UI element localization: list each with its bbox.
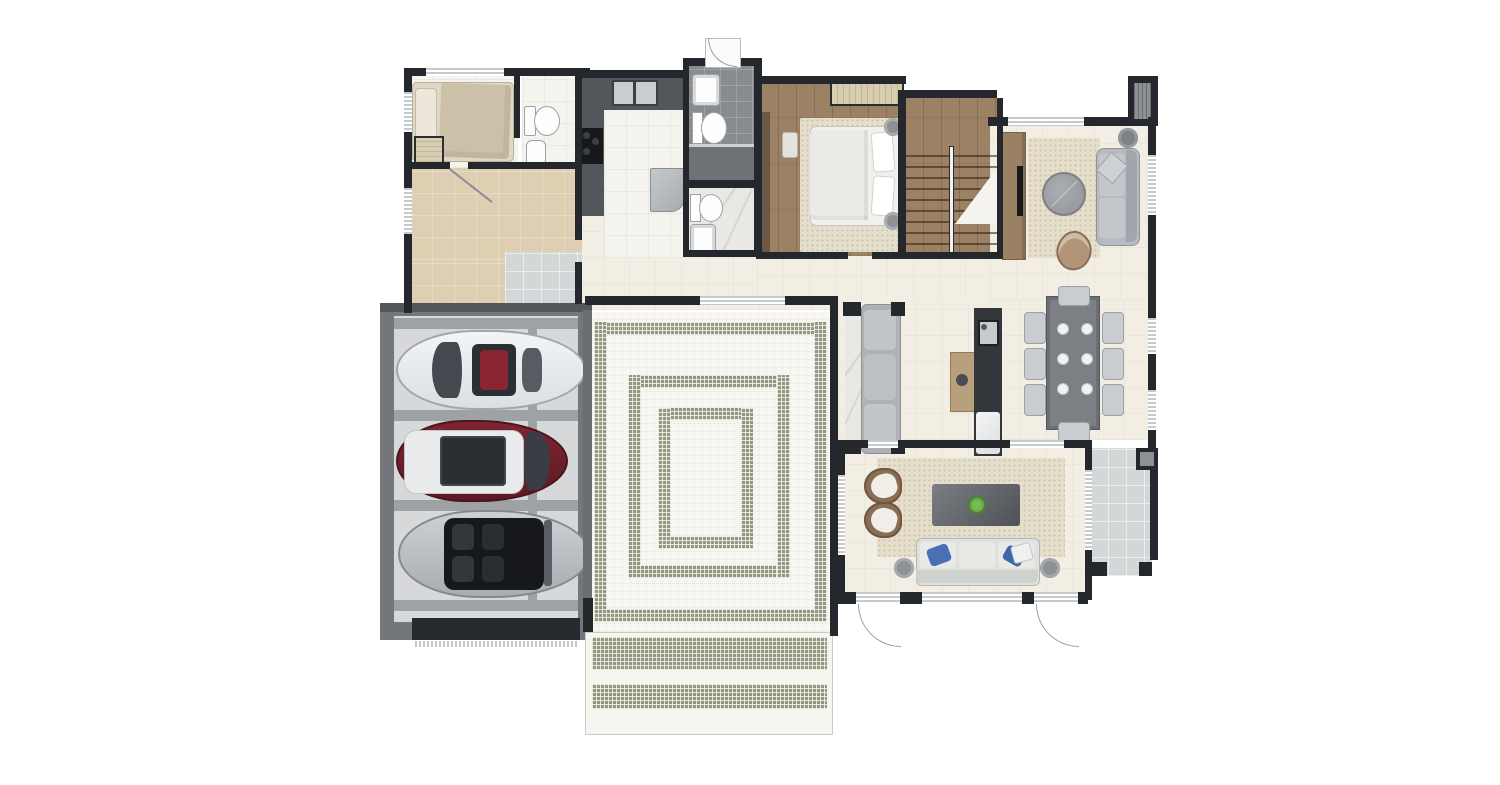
patio-tile-ring-inner bbox=[658, 408, 670, 549]
wall bbox=[830, 296, 838, 636]
window bbox=[404, 92, 412, 132]
island-faucet bbox=[981, 324, 987, 330]
bed-pillow bbox=[871, 175, 896, 216]
doorway bbox=[868, 440, 898, 448]
wall-gray bbox=[583, 310, 592, 632]
garage-door bbox=[415, 641, 577, 647]
wall bbox=[408, 162, 450, 169]
sofa-back bbox=[916, 570, 1038, 583]
bench-cushion bbox=[864, 404, 896, 444]
terrace-step bbox=[1139, 562, 1152, 576]
window bbox=[922, 592, 1022, 604]
dining-chair bbox=[1024, 312, 1046, 344]
window bbox=[1148, 390, 1156, 430]
patio-tile-ring-middle bbox=[628, 375, 790, 388]
sofa-cushion bbox=[959, 542, 995, 568]
patio-tile-ring-middle bbox=[777, 375, 790, 578]
toilet-bowl bbox=[534, 106, 560, 136]
burner bbox=[583, 132, 590, 139]
french-door bbox=[700, 296, 785, 305]
window bbox=[1148, 318, 1156, 354]
car-windshield bbox=[524, 432, 550, 490]
patio-door bbox=[856, 592, 900, 604]
master-duvet bbox=[810, 130, 868, 220]
hallway-floor bbox=[410, 168, 582, 260]
patio-tile-ring-inner bbox=[658, 408, 753, 420]
wall bbox=[683, 58, 689, 254]
bench-cushion bbox=[864, 354, 896, 400]
wall bbox=[898, 90, 906, 258]
patio-tile-ring-middle bbox=[628, 375, 641, 578]
sink bbox=[692, 74, 720, 106]
floor-plan bbox=[0, 0, 1500, 785]
patio-tile-ring-inner bbox=[741, 408, 753, 549]
wall bbox=[683, 250, 762, 257]
dining-chair bbox=[1058, 286, 1090, 306]
refrigerator bbox=[650, 168, 685, 212]
car-seat bbox=[452, 556, 474, 582]
bench-cushion bbox=[864, 310, 896, 350]
burner bbox=[592, 138, 599, 145]
place-setting bbox=[1081, 323, 1093, 335]
toilet-bowl bbox=[701, 112, 727, 144]
wall bbox=[583, 598, 593, 632]
place-setting bbox=[1057, 323, 1069, 335]
wall bbox=[575, 70, 582, 170]
convertible-car bbox=[398, 510, 590, 598]
terrace-column-core bbox=[1140, 452, 1154, 466]
sofa-backrest bbox=[1126, 150, 1137, 242]
suv-car bbox=[396, 420, 568, 502]
window bbox=[1148, 155, 1156, 215]
dining-chair bbox=[1024, 348, 1046, 380]
step-band bbox=[592, 684, 827, 709]
patio-tile-ring-outer bbox=[814, 322, 827, 622]
toilet-bowl bbox=[699, 194, 723, 222]
patio-tile-ring-outer bbox=[594, 609, 827, 622]
wall bbox=[898, 440, 1010, 448]
wall bbox=[838, 440, 868, 448]
place-setting bbox=[1057, 353, 1069, 365]
entry-floor bbox=[505, 252, 582, 308]
dining-chair bbox=[1102, 348, 1124, 380]
shower-floor bbox=[688, 146, 756, 182]
step-band bbox=[592, 637, 827, 670]
terrace-step bbox=[1090, 562, 1107, 576]
car-sunroof bbox=[440, 436, 506, 486]
dining-chair bbox=[1102, 312, 1124, 344]
chimney-flue bbox=[1134, 83, 1151, 119]
patio-door bbox=[1034, 592, 1078, 604]
car-seat bbox=[482, 524, 504, 550]
wall bbox=[756, 76, 906, 84]
window bbox=[838, 475, 845, 555]
side-table bbox=[1118, 128, 1138, 148]
door-swing bbox=[858, 604, 901, 647]
wall bbox=[575, 70, 687, 78]
place-setting bbox=[1081, 383, 1093, 395]
patio-tile-ring-outer bbox=[594, 322, 607, 622]
bed-pillow bbox=[871, 131, 896, 172]
banquette-table bbox=[845, 304, 861, 452]
car-windshield bbox=[544, 520, 552, 586]
patio-tile-ring-middle bbox=[628, 565, 790, 578]
dining-chair bbox=[1102, 384, 1124, 416]
side-table bbox=[894, 558, 914, 578]
tv bbox=[1017, 166, 1023, 216]
shower-glass bbox=[688, 144, 756, 147]
courtyard-patio bbox=[590, 312, 833, 632]
wall bbox=[688, 180, 754, 188]
patio-tile-ring-outer bbox=[594, 322, 827, 335]
car-windshield bbox=[432, 342, 462, 398]
wall bbox=[756, 252, 848, 259]
bench-post bbox=[891, 302, 905, 316]
place-setting bbox=[1081, 353, 1093, 365]
garage-door-opening bbox=[412, 618, 580, 640]
car-seat bbox=[482, 556, 504, 582]
guest-bed-blanket bbox=[439, 83, 512, 159]
window bbox=[404, 188, 412, 234]
car-rear-window bbox=[522, 348, 542, 392]
sofa-cushion bbox=[1099, 198, 1125, 238]
dining-chair bbox=[1058, 422, 1090, 442]
bench-post bbox=[843, 302, 861, 316]
stair-railing bbox=[949, 146, 954, 256]
wall bbox=[754, 58, 762, 256]
window bbox=[426, 68, 504, 76]
console-knob bbox=[956, 374, 968, 386]
wall bbox=[905, 252, 1003, 259]
window bbox=[1008, 117, 1084, 126]
hallway-floor-lower bbox=[410, 260, 505, 308]
sink-divider bbox=[633, 82, 636, 104]
bedroom-bench bbox=[782, 132, 798, 158]
car-engine-detail bbox=[480, 350, 508, 390]
doorway bbox=[1085, 470, 1092, 550]
side-table bbox=[1040, 558, 1060, 578]
car-seat bbox=[452, 524, 474, 550]
wall bbox=[575, 170, 582, 240]
burner bbox=[583, 148, 590, 155]
wall bbox=[575, 262, 582, 304]
dining-chair bbox=[1024, 384, 1046, 416]
parking-divider bbox=[394, 600, 578, 611]
patio-tile-ring-inner bbox=[658, 537, 753, 549]
place-setting bbox=[1057, 383, 1069, 395]
door-swing bbox=[1036, 604, 1079, 647]
wall bbox=[872, 252, 906, 259]
wall bbox=[1150, 466, 1158, 560]
wall bbox=[468, 162, 582, 169]
doorway bbox=[1010, 440, 1064, 448]
plant bbox=[968, 496, 986, 514]
sports-car bbox=[396, 330, 586, 410]
wall bbox=[898, 90, 997, 98]
wall bbox=[514, 76, 520, 138]
parking-divider bbox=[394, 318, 578, 329]
